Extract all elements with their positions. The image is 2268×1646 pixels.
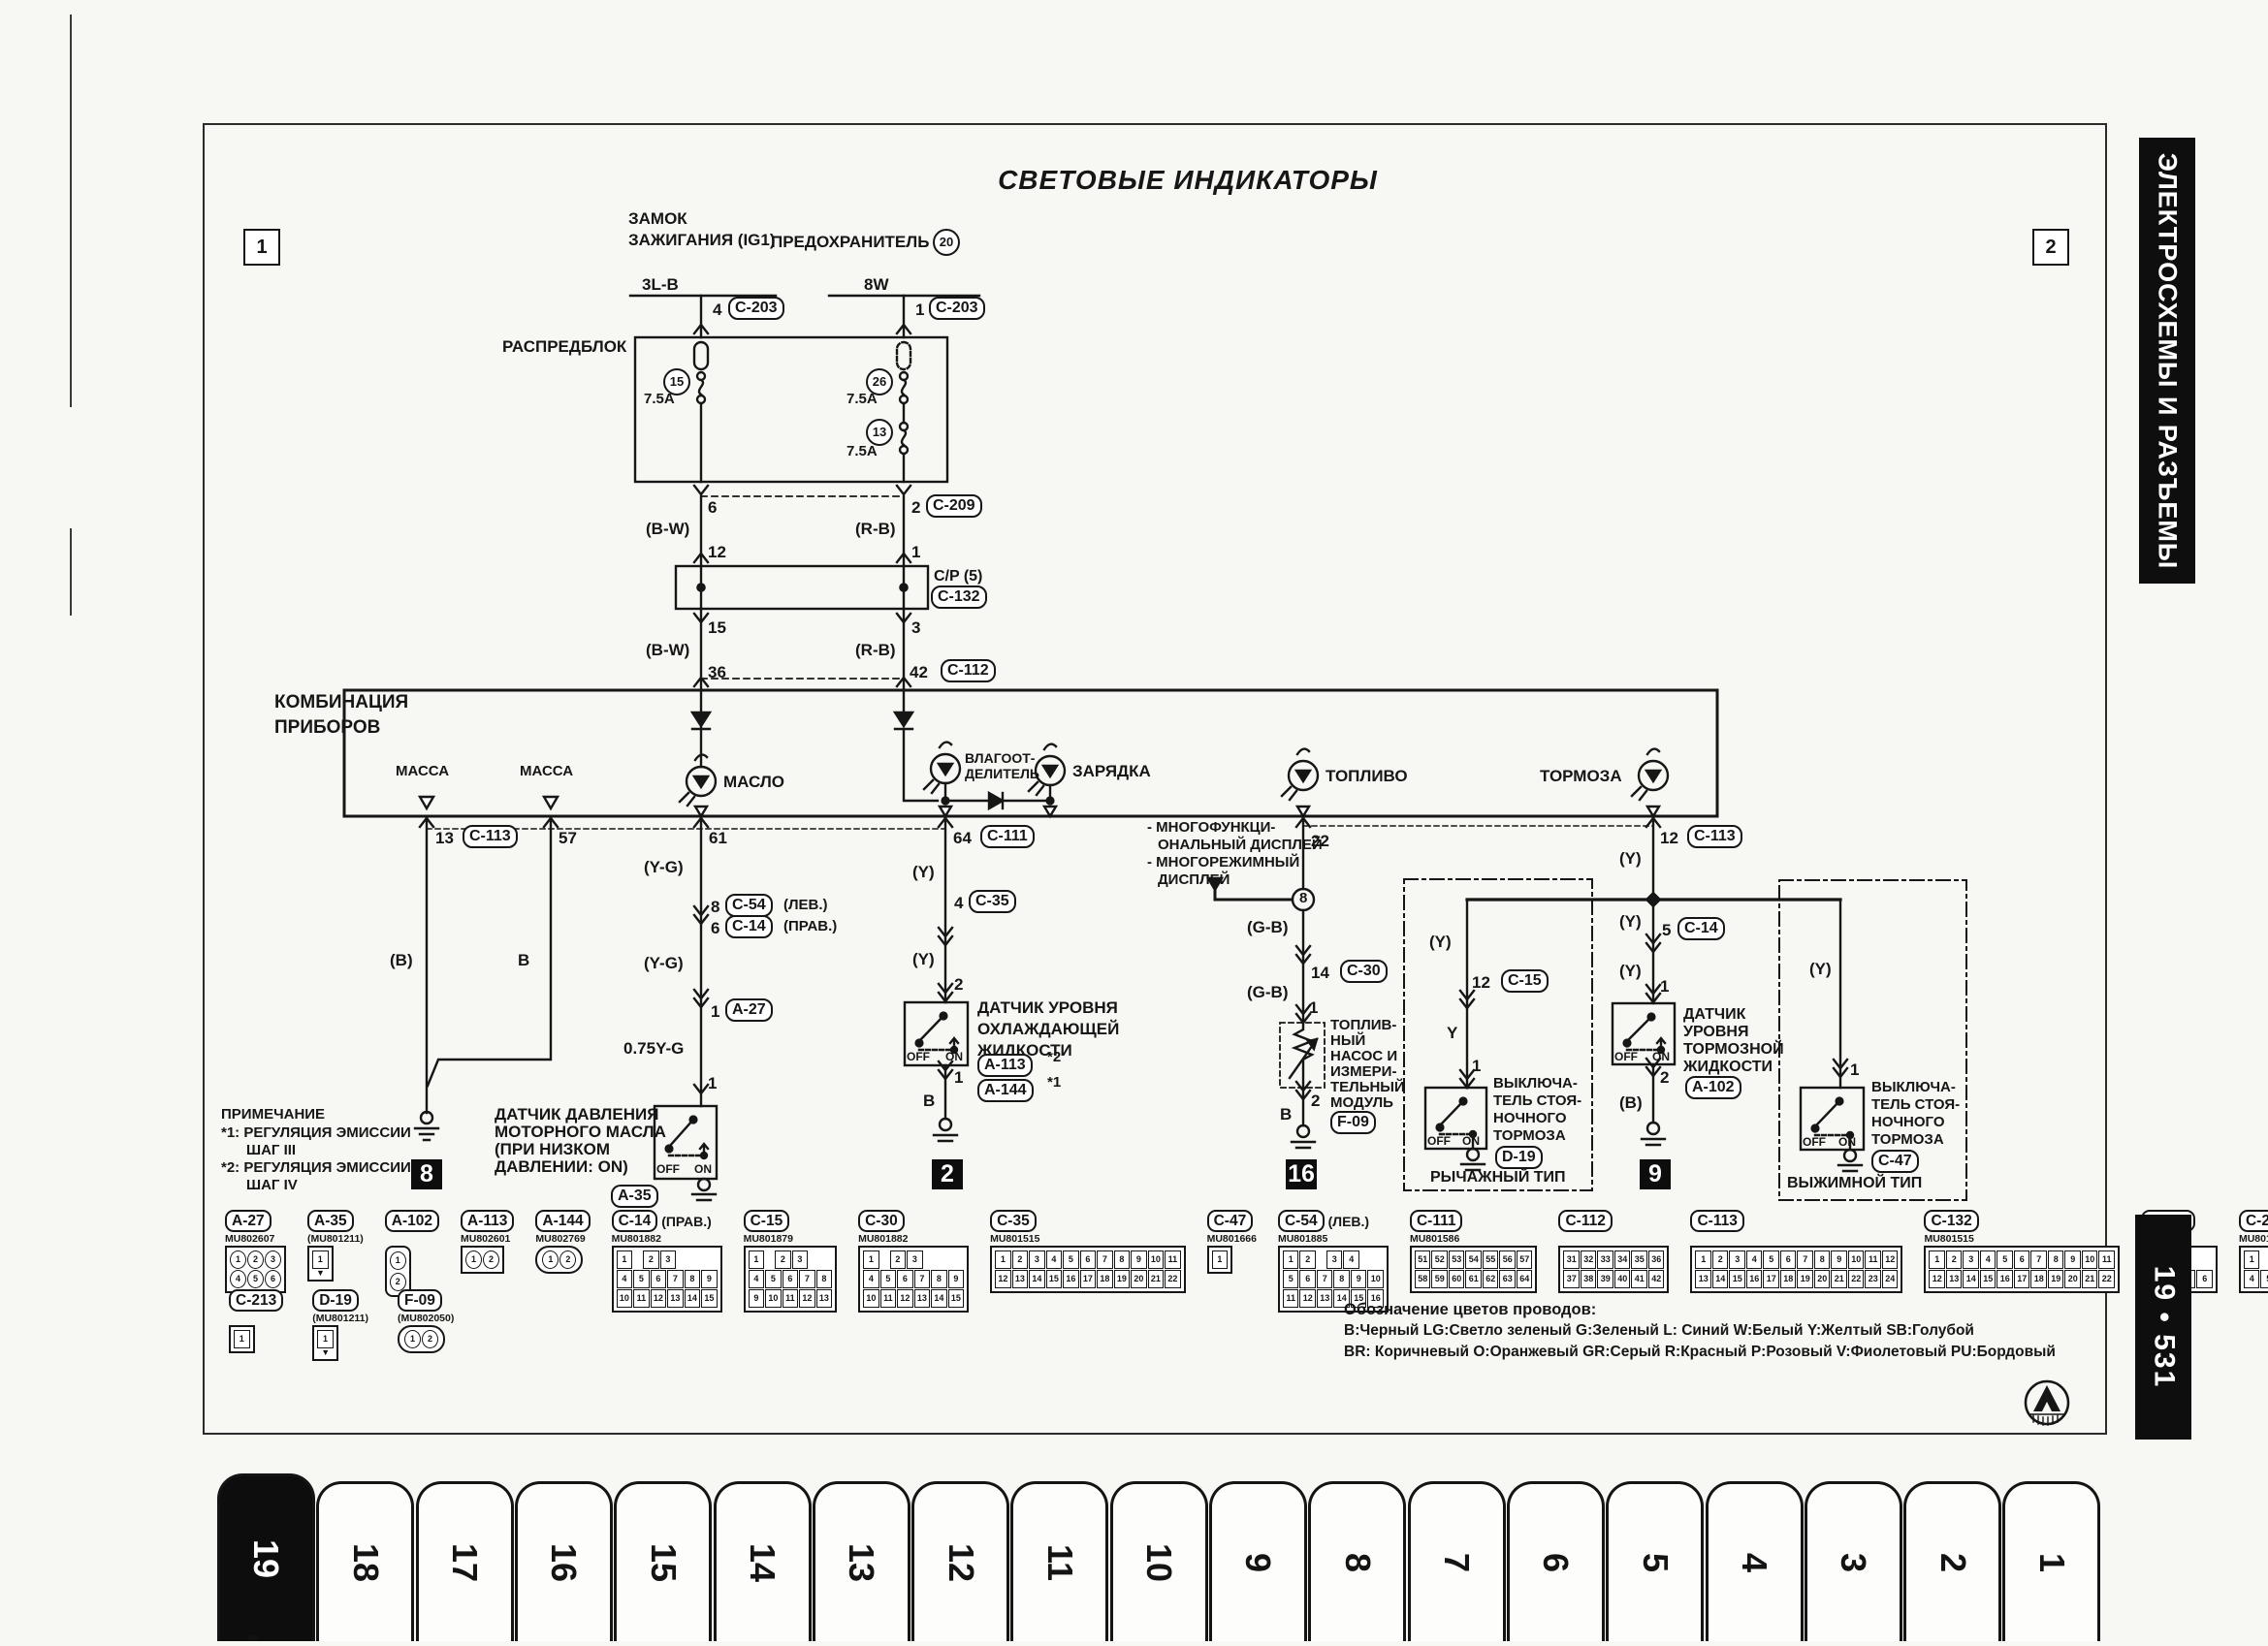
pin-6: 6 — [1780, 1250, 1797, 1269]
connector-layouts-row1: A-27MU802607123456A-35(MU801211)1▼A-1021… — [225, 1210, 2268, 1313]
display-note4: ДИСПЛЕЙ — [1158, 872, 1230, 889]
connector-pin-icon: 1▼ — [307, 1246, 334, 1282]
ground-point-2: 2 — [932, 1159, 963, 1189]
connector-ref-c30: C-30 — [1340, 960, 1388, 983]
pin-2: 2 — [1946, 1250, 1963, 1269]
pin-24: 24 — [1882, 1270, 1899, 1288]
pin-14: 14 — [685, 1289, 701, 1308]
connector-pin-row: 1 — [312, 1250, 329, 1269]
pin-64: 64 — [1517, 1270, 1533, 1288]
pin-4: 4 — [1746, 1250, 1763, 1269]
pin-2: 2 — [247, 1250, 264, 1269]
pin-2: 2 — [559, 1250, 576, 1269]
connector-pin-row: 456789 — [617, 1270, 718, 1288]
pin-3: 3 — [265, 1250, 281, 1269]
connector-pin-icon: 1 — [1207, 1246, 1233, 1274]
pin-10: 10 — [765, 1289, 782, 1308]
pin-3: 3 — [660, 1250, 677, 1269]
component-ref-a102: A-102 — [1685, 1076, 1741, 1099]
connector-pin-row: 373839404142 — [1563, 1270, 1664, 1288]
pin-12: 12 — [897, 1289, 913, 1308]
pin-7: 7 — [1797, 1250, 1813, 1269]
connector-id: C-35 — [990, 1210, 1037, 1232]
cluster-label2: ПРИБОРОВ — [274, 717, 380, 738]
pin-1-oil: 1 — [708, 1074, 717, 1092]
pin-2: 2 — [775, 1250, 791, 1269]
pin-34: 34 — [1614, 1250, 1631, 1269]
pin-9: 9 — [1131, 1250, 1147, 1269]
connector-A-144: A-144MU80276912 — [535, 1210, 590, 1274]
pin-13: 13 — [1317, 1289, 1333, 1308]
pin-6: 6 — [897, 1270, 913, 1288]
pin-3: 3 — [911, 618, 920, 637]
fuel-sender-resistor-icon — [1280, 1023, 1325, 1088]
coolant-sensor-name2: ОХЛАЖДАЮЩЕЙ — [977, 1020, 1119, 1038]
connector-pin-icon: 12345678910111213 — [744, 1246, 838, 1313]
connector-ref-c113a: C-113 — [463, 825, 518, 848]
pin-16: 16 — [1063, 1270, 1079, 1288]
pin-7: 7 — [667, 1270, 684, 1288]
connector-pin-icon: 123456789101112131415 — [612, 1246, 722, 1313]
junction-8: 8 — [1299, 891, 1307, 907]
lever-switch-on: ON — [1462, 1135, 1480, 1147]
pin-6: 6 — [2196, 1270, 2213, 1288]
pin-5: 5 — [880, 1270, 897, 1288]
connector-pin-icon: 1▼ — [312, 1325, 338, 1361]
fuse-source-number: 20 — [933, 229, 960, 256]
chapter-tab-label: 5 — [1638, 1553, 1673, 1572]
pin-13: 13 — [816, 1289, 833, 1308]
sidebar-pageref-bar: 19 • 531 — [2135, 1215, 2191, 1440]
connector-part-number: MU802607 — [225, 1233, 274, 1245]
pin-9: 9 — [1351, 1270, 1367, 1288]
pin-2: 2 — [1012, 1250, 1029, 1269]
pin-4: 4 — [617, 1270, 633, 1288]
connector-part-number: MU801515 — [1924, 1233, 1973, 1245]
chapter-tab-label: 6 — [1538, 1553, 1573, 1572]
pin-2: 2 — [890, 1250, 907, 1269]
ground-point-8: 8 — [411, 1159, 442, 1189]
pin-12: 12 — [1882, 1250, 1899, 1269]
pin-arrow-icon: ▼ — [321, 1349, 334, 1356]
pin-18: 18 — [2030, 1270, 2047, 1288]
push-switch-name3: НОЧНОГО — [1871, 1115, 1945, 1131]
pin-7: 7 — [914, 1270, 931, 1288]
chapter-tab-10: 10 — [1110, 1481, 1208, 1641]
manual-page: 1 2 СВЕТОВЫЕ ИНДИКАТОРЫ ЗАМОК ЗАЖИГАНИЯ … — [0, 0, 2268, 1646]
connector-pin-row: 313233343536 — [1563, 1250, 1664, 1269]
connector-pin-row: 123 — [2244, 1250, 2268, 1269]
pin-13: 13 — [914, 1289, 931, 1308]
connector-id: C-15 — [744, 1210, 790, 1232]
pin-2: 2 — [911, 498, 920, 517]
pin-1: 1 — [617, 1250, 633, 1269]
lever-y: Y — [1447, 1024, 1457, 1042]
connector-id-row: C-35 — [990, 1210, 1037, 1232]
pin-5: 5 — [2260, 1270, 2268, 1288]
wire-color-bw1: (B-W) — [646, 520, 689, 538]
pin-13: 13 — [1695, 1270, 1711, 1288]
legend-line2: BR: Коричневый O:Оранжевый GR:Серый R:Кр… — [1344, 1344, 2056, 1360]
connector-A-27: A-27MU802607123456 — [225, 1210, 286, 1293]
connector-id: C-14 — [612, 1210, 658, 1232]
chapter-tab-13: 13 — [813, 1481, 910, 1641]
wire-color-3lb: 3L-B — [642, 275, 679, 294]
cp-joint-box — [676, 566, 928, 609]
pin-2: 2 — [422, 1330, 438, 1348]
oil-sensor-name4: ДАВЛЕНИИ: ON) — [495, 1157, 628, 1176]
connector-pin-row: 910111213 — [749, 1289, 833, 1308]
connector-part-number: MU801885 — [1278, 1233, 1327, 1245]
brake-fluid-name: ДАТЧИК — [1683, 1006, 1745, 1024]
connector-C-113: C-11312345678910111213141516171819202122… — [1690, 1210, 1902, 1293]
cluster-label: КОМБИНАЦИЯ — [274, 692, 408, 712]
pin-3: 3 — [1963, 1250, 1979, 1269]
connector-part-number: MU801586 — [1410, 1233, 1459, 1245]
pin-16: 16 — [1746, 1270, 1763, 1288]
connector-id: A-35 — [307, 1210, 354, 1232]
pin-63: 63 — [1499, 1270, 1516, 1288]
brake-y2: (Y) — [1619, 962, 1642, 980]
pin-8: 8 — [1333, 1270, 1350, 1288]
connector-part-number: MU802601 — [461, 1233, 510, 1245]
connector-part-number: MU801839 — [2239, 1233, 2268, 1245]
footnote-title: ПРИМЕЧАНИЕ — [221, 1107, 325, 1124]
chapter-tab-4: 4 — [1706, 1481, 1804, 1641]
pin-1: 1 — [312, 1250, 329, 1269]
chapter-tab-label: 15 — [646, 1543, 681, 1582]
pin-11: 11 — [783, 1289, 799, 1308]
pin-1: 1 — [234, 1330, 250, 1348]
pin-14: 14 — [1311, 964, 1329, 982]
chapter-tab-17: 17 — [416, 1481, 514, 1641]
fuse-13: 13 — [866, 419, 893, 446]
connector-id: A-144 — [535, 1210, 590, 1232]
pin-13: 13 — [1012, 1270, 1029, 1288]
connector-C-14: C-14(ПРАВ.)MU801882123456789101112131415 — [612, 1210, 722, 1313]
connector-part-number: (MU802050) — [398, 1313, 454, 1324]
pin-54: 54 — [1465, 1250, 1482, 1269]
connector-pin-icon: 5152535455565758596061626364 — [1410, 1246, 1538, 1293]
pin-7: 7 — [2030, 1250, 2047, 1269]
pin-13: 13 — [1946, 1270, 1963, 1288]
chapter-tab-label: 18 — [348, 1543, 383, 1582]
sidebar-page-ref: 19 • 531 — [2147, 1266, 2180, 1389]
push-type-label: ВЫЖИМНОЙ ТИП — [1787, 1175, 1922, 1192]
pin-6: 6 — [1299, 1270, 1316, 1288]
lamp-fuel-icon — [1282, 749, 1318, 800]
pin-6: 6 — [1080, 1250, 1097, 1269]
connector-pin-row: 1 — [234, 1330, 250, 1348]
pin-7: 7 — [1317, 1270, 1333, 1288]
connector-pin-row: 12 — [404, 1330, 438, 1348]
pin-9: 9 — [948, 1270, 965, 1288]
chapter-tab-15: 15 — [614, 1481, 712, 1641]
lamp-brake-icon — [1632, 749, 1668, 800]
pin-40: 40 — [1614, 1270, 1631, 1288]
cp-label: C/P (5) — [934, 568, 982, 586]
lever-switch-off: OFF — [1427, 1135, 1451, 1147]
fuse-source-label: ПРЕДОХРАНИТЕЛЬ — [771, 233, 929, 251]
chapter-tab-6: 6 — [1507, 1481, 1605, 1641]
chapter-tab-label: 8 — [1340, 1553, 1375, 1572]
sheet-marker-2: 2 — [2032, 229, 2069, 266]
sheet-marker-1: 1 — [243, 229, 280, 266]
pin-arrow-icon: ▼ — [316, 1270, 329, 1277]
oil-switch-off: OFF — [656, 1163, 680, 1175]
push-brake-switch-icon — [1801, 1088, 1864, 1171]
footnote-1: *1: РЕГУЛЯЦИЯ ЭМИССИИ — [221, 1125, 411, 1142]
connector-ref-c203-l: C-203 — [728, 297, 784, 320]
pin-16: 16 — [1996, 1270, 2013, 1288]
connector-id: C-30 — [858, 1210, 905, 1232]
fuel-gb2: (G-B) — [1247, 983, 1288, 1001]
pin-4: 4 — [863, 1270, 879, 1288]
wire-color-b1: (B) — [390, 951, 413, 969]
wire-color-bw2: (B-W) — [646, 641, 689, 659]
connector-pin-row: 1 — [1212, 1250, 1229, 1269]
connector-id: C-54 — [1278, 1210, 1325, 1232]
pin-11: 11 — [1165, 1250, 1181, 1269]
pin-23: 23 — [1865, 1270, 1881, 1288]
chapter-tab-label: 3 — [1836, 1553, 1870, 1572]
chapter-tab-label: 13 — [844, 1543, 878, 1582]
pin-3: 3 — [1029, 1250, 1045, 1269]
pin-12: 12 — [995, 1270, 1011, 1288]
connector-pin-row: 456 — [230, 1270, 281, 1288]
wire-color-yg1: (Y-G) — [644, 858, 684, 876]
pin-9: 9 — [701, 1270, 718, 1288]
lamp-separator-icon — [924, 743, 960, 793]
connector-pin-row: 123 — [230, 1250, 281, 1269]
pin-61: 61 — [1465, 1270, 1482, 1288]
chapter-tab-5: 5 — [1606, 1481, 1704, 1641]
connector-id: F-09 — [398, 1289, 442, 1312]
pin-22: 22 — [2098, 1270, 2115, 1288]
pin-11: 11 — [633, 1289, 650, 1308]
brake-y0: (Y) — [1619, 849, 1642, 868]
pin-1: 1 — [2244, 1250, 2260, 1269]
connector-part-number: (MU801211) — [307, 1233, 364, 1245]
chapter-tab-label: 4 — [1737, 1553, 1772, 1572]
connector-pin-row: 101112131415 — [617, 1289, 718, 1308]
footnote-2b: ШАГ IV — [246, 1178, 298, 1194]
connector-pin-row: 1 — [390, 1251, 406, 1270]
wire-color-b2: B — [518, 951, 529, 969]
fuse-13-rating: 7.5A — [847, 444, 878, 460]
push-switch-name2: ТЕЛЬ СТОЯ- — [1871, 1097, 1960, 1114]
connector-F-09: F-09(MU802050)12 — [398, 1289, 454, 1353]
brake-b: (B) — [1619, 1093, 1643, 1112]
indicator-ground2: МАССА — [520, 764, 573, 780]
connector-id-row: C-111 — [1410, 1210, 1463, 1232]
pin-41: 41 — [1631, 1270, 1647, 1288]
connector-C-47: C-47MU8016661 — [1207, 1210, 1257, 1274]
chapter-tab-label: 17 — [447, 1543, 482, 1582]
pin-59: 59 — [1431, 1270, 1448, 1288]
ground-point-9: 9 — [1640, 1159, 1671, 1189]
pin-9: 9 — [1831, 1250, 1847, 1269]
connector-pin-row: 101112131415 — [863, 1289, 964, 1308]
connector-C-132: C-132MU801515123456789101112131415161718… — [1924, 1210, 2120, 1293]
pin-18: 18 — [1097, 1270, 1113, 1288]
connector-ref-c209: C-209 — [926, 494, 982, 518]
pin-12: 12 — [1299, 1289, 1316, 1308]
connector-C-30: C-30MU801882123456789101112131415 — [858, 1210, 969, 1313]
pin-1-a27: 1 — [711, 1002, 719, 1021]
pin-51: 51 — [1415, 1250, 1431, 1269]
connector-id-row: C-47 — [1207, 1210, 1254, 1232]
pin-42: 42 — [910, 663, 928, 681]
pin-gap — [765, 1250, 774, 1267]
connector-pin-row: 1213141516171819202122 — [1929, 1270, 2115, 1288]
pin-6b: 6 — [711, 919, 719, 937]
fuse-26-rating: 7.5A — [847, 392, 878, 408]
pin-8: 8 — [816, 1270, 833, 1288]
pin-8: 8 — [1114, 1250, 1131, 1269]
pin-37: 37 — [1563, 1270, 1580, 1288]
pin-15: 15 — [708, 618, 726, 637]
lever-switch-name: ВЫКЛЮЧА- — [1493, 1076, 1578, 1092]
pin-11: 11 — [1865, 1250, 1881, 1269]
chapter-tab-label: 7 — [1439, 1553, 1474, 1572]
footnote-2: *2: РЕГУЛЯЦИЯ ЭМИССИИ — [221, 1160, 411, 1177]
connector-id: A-102 — [385, 1210, 439, 1232]
chapter-tab-label: 12 — [943, 1543, 978, 1582]
connector-pin-row: 12 — [465, 1250, 499, 1269]
wiring-diagram-art — [0, 0, 2268, 1646]
coolant-sensor-name: ДАТЧИК УРОВНЯ — [977, 998, 1118, 1017]
pin-1: 1 — [230, 1250, 246, 1269]
indicator-brake: ТОРМОЗА — [1540, 767, 1622, 785]
pin-20: 20 — [1131, 1270, 1147, 1288]
connector-id-row: C-113 — [1690, 1210, 1743, 1232]
pin-21: 21 — [2082, 1270, 2098, 1288]
chapter-tab-11: 11 — [1010, 1481, 1108, 1641]
pin-12-c15: 12 — [1472, 973, 1490, 992]
pin-gap — [1317, 1250, 1326, 1267]
connector-id-row: A-35 — [307, 1210, 354, 1232]
pin-4: 4 — [713, 301, 721, 319]
connector-pin-row: 1213141516171819202122 — [995, 1270, 1181, 1288]
oil-sensor-name2: МОТОРНОГО МАСЛА — [495, 1123, 666, 1141]
pin-36: 36 — [1648, 1250, 1665, 1269]
pin-gap — [880, 1250, 889, 1267]
distribution-block-label: РАСПРЕДБЛОК — [502, 337, 626, 356]
connector-id: C-47 — [1207, 1210, 1254, 1232]
connector-id: A-27 — [225, 1210, 272, 1232]
pin-4: 4 — [1980, 1250, 1996, 1269]
pin-5: 5 — [765, 1270, 782, 1288]
pin-15: 15 — [1046, 1270, 1063, 1288]
chapter-tab-label: 2 — [1935, 1553, 1970, 1572]
connector-pin-icon: 123456 — [225, 1246, 286, 1293]
oil-pressure-switch-icon — [655, 1106, 717, 1200]
pin-64: 64 — [953, 829, 972, 847]
component-ref-f09: F-09 — [1330, 1111, 1376, 1134]
publisher-logo-icon — [2026, 1381, 2068, 1425]
pin-5: 5 — [1063, 1250, 1079, 1269]
pin-4: 4 — [1046, 1250, 1063, 1269]
pin-1: 1 — [863, 1250, 879, 1269]
chapter-tab-18: 18 — [316, 1481, 414, 1641]
pin-1: 1 — [915, 301, 924, 319]
pin-1-fuel: 1 — [1309, 998, 1318, 1017]
oil-sensor-name: ДАТЧИК ДАВЛЕНИЯ — [495, 1105, 658, 1124]
connector-ref-c132: C-132 — [931, 586, 987, 609]
pin-10: 10 — [863, 1289, 879, 1308]
connector-id-row: C-15 — [744, 1210, 790, 1232]
push-switch-name: ВЫКЛЮЧА- — [1871, 1080, 1956, 1096]
connector-pin-icon: 123456789101112131415 — [858, 1246, 969, 1313]
connector-part-number: MU802769 — [535, 1233, 585, 1245]
ignition-label2: ЗАЖИГАНИЯ (IG1) — [628, 231, 776, 249]
indicator-separator: ВЛАГООТ- — [965, 751, 1035, 767]
connector-ref-c113b: C-113 — [1687, 825, 1742, 848]
connector-id-row: A-102 — [385, 1210, 439, 1232]
brake-fluid-name3: ТОРМОЗНОЙ — [1683, 1041, 1784, 1059]
connector-id: C-112 — [1558, 1210, 1612, 1232]
connector-pin-icon: 1 — [229, 1325, 255, 1353]
connector-pin-icon: 12345678910111213141516171819202122 — [1924, 1246, 2120, 1293]
pin-8: 8 — [685, 1270, 701, 1288]
connector-id: C-132 — [1924, 1210, 1978, 1232]
chapter-tab-1: 1 — [2002, 1481, 2100, 1641]
pin-9: 9 — [2064, 1250, 2081, 1269]
connector-ref-c35: C-35 — [969, 890, 1016, 913]
connector-pin-row: 45678 — [749, 1270, 833, 1288]
connector-part-number: MU801882 — [612, 1233, 661, 1245]
connector-id: C-113 — [1690, 1210, 1743, 1232]
pin-56: 56 — [1499, 1250, 1516, 1269]
pin-1-push: 1 — [1850, 1060, 1859, 1079]
pin-58: 58 — [1415, 1270, 1431, 1288]
coolant-b: B — [923, 1092, 935, 1110]
connector-id-row: A-27 — [225, 1210, 272, 1232]
pin-60: 60 — [1449, 1270, 1465, 1288]
ignition-label: ЗАМОК — [628, 209, 687, 228]
pin-14: 14 — [1963, 1270, 1979, 1288]
pin-2: 2 — [483, 1250, 499, 1269]
pin-22: 22 — [1848, 1270, 1865, 1288]
display-note2: ОНАЛЬНЫЙ ДИСПЛЕЙ — [1158, 838, 1323, 854]
connector-pin-icon: 12 — [535, 1246, 583, 1274]
pin-6: 6 — [265, 1270, 281, 1288]
connector-id: C-209 — [2239, 1210, 2268, 1232]
pin-1: 1 — [1283, 1250, 1299, 1269]
pin-19: 19 — [1114, 1270, 1131, 1288]
pin-2: 2 — [643, 1250, 659, 1269]
pin-14: 14 — [1029, 1270, 1045, 1288]
connector-A-113: A-113MU80260112 — [461, 1210, 514, 1274]
pin-32: 32 — [1581, 1250, 1597, 1269]
connector-pin-row: 5678910 — [1283, 1270, 1384, 1288]
connector-pin-row: 123 — [749, 1250, 833, 1269]
coolant-switch-off: OFF — [907, 1051, 930, 1062]
lever-switch-name3: НОЧНОГО — [1493, 1111, 1567, 1127]
pin-57: 57 — [1517, 1250, 1533, 1269]
connector-part-number: MU801666 — [1207, 1233, 1257, 1245]
pin-1-coolant: 1 — [954, 1068, 963, 1087]
pin-1: 1 — [317, 1330, 334, 1348]
pin-1-lever: 1 — [1472, 1057, 1481, 1075]
sidebar-section-bar: ЭЛЕКТРОСХЕМЫ И РАЗЪЕМЫ — [2139, 138, 2195, 584]
lever-switch-name4: ТОРМОЗА — [1493, 1128, 1566, 1145]
lever-type-label: РЫЧАЖНЫЙ ТИП — [1430, 1169, 1566, 1187]
connector-ref-c54: C-54 — [725, 894, 773, 917]
connector-pin-row: 51525354555657 — [1415, 1250, 1533, 1269]
pin-4: 4 — [2244, 1270, 2260, 1288]
